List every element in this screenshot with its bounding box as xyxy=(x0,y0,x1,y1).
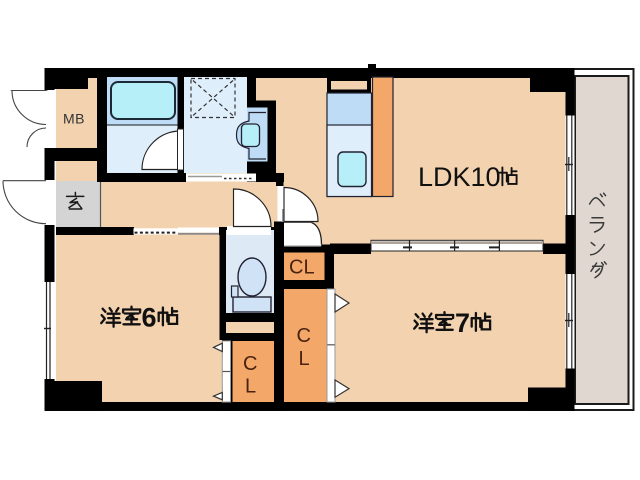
svg-text:C: C xyxy=(243,353,257,375)
svg-text:CL: CL xyxy=(289,257,315,279)
svg-text:MB: MB xyxy=(63,111,85,127)
svg-text:C: C xyxy=(297,325,311,347)
svg-text:7: 7 xyxy=(455,308,470,338)
svg-text:L: L xyxy=(299,348,310,370)
svg-text:6: 6 xyxy=(142,303,157,333)
svg-text:L: L xyxy=(245,376,256,398)
svg-text:LDK10: LDK10 xyxy=(418,162,501,192)
